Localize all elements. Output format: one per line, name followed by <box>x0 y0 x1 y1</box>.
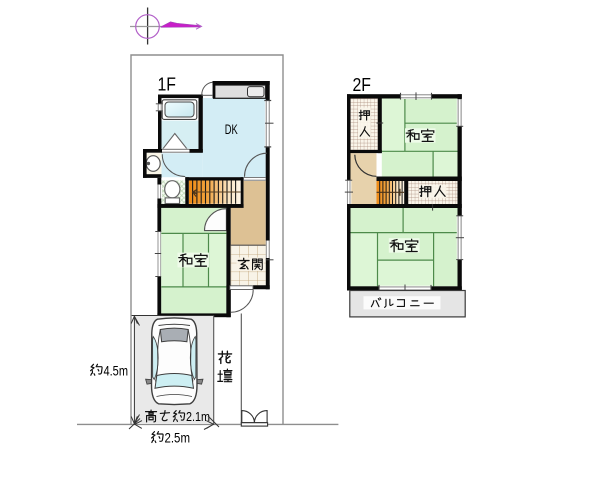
svg-text:DK: DK <box>225 121 238 137</box>
svg-text:4.5m: 4.5m <box>104 363 129 378</box>
svg-text:2F: 2F <box>353 75 372 95</box>
svg-text:2.1m: 2.1m <box>186 409 210 424</box>
svg-text:2.5m: 2.5m <box>165 431 191 446</box>
svg-text:1F: 1F <box>158 75 177 95</box>
